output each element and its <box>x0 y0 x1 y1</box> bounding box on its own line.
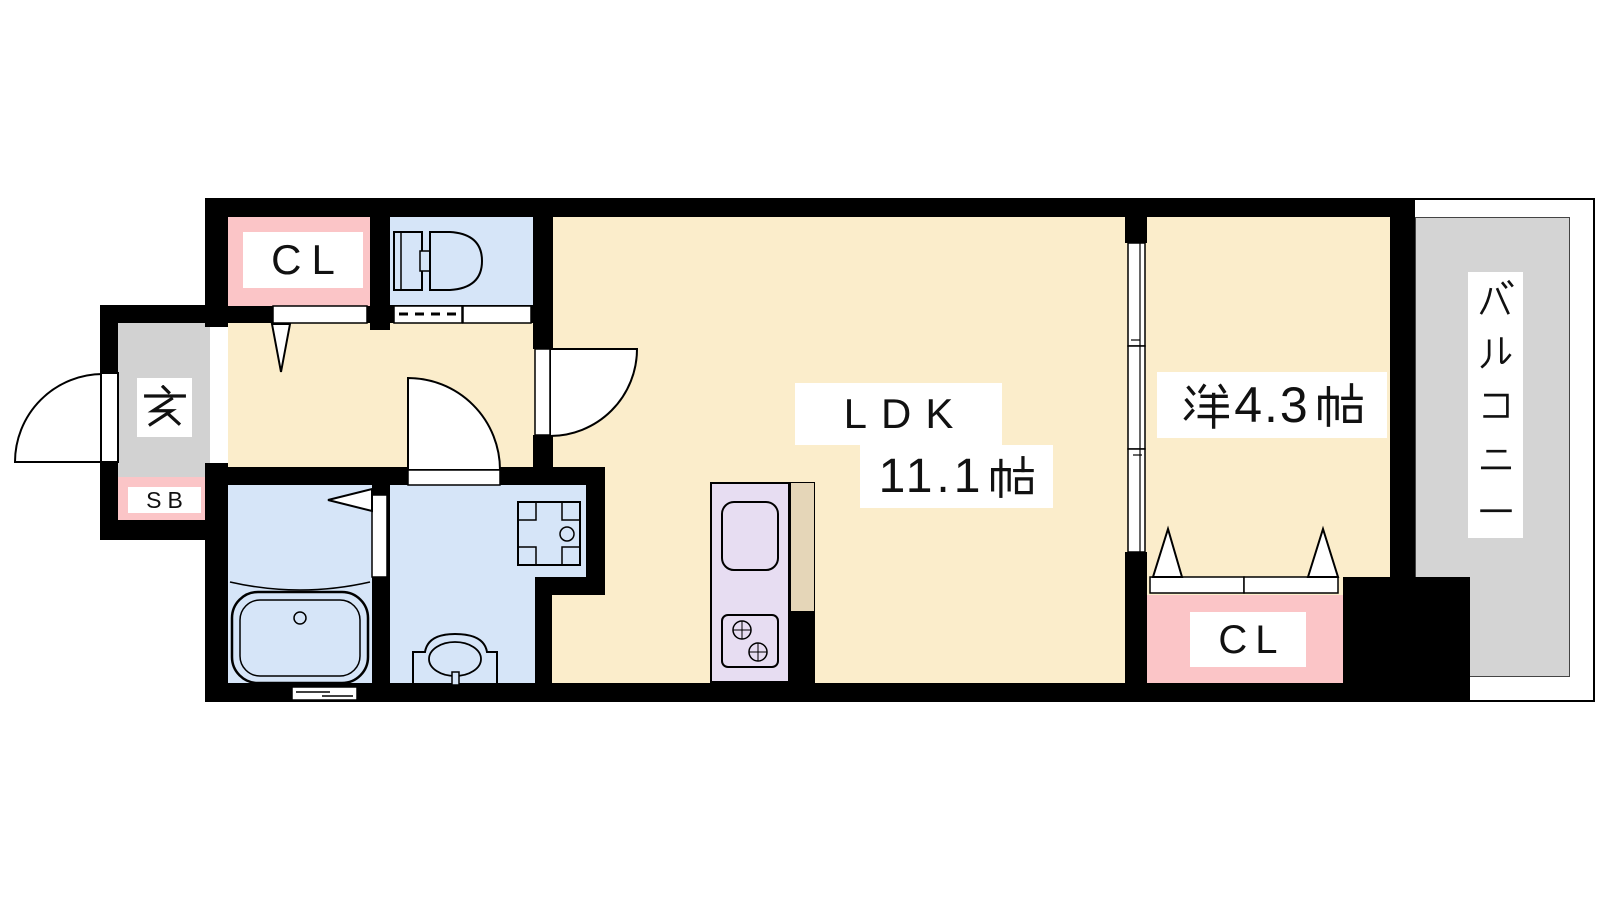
toilet-sliding-door <box>394 306 531 323</box>
kanji-gen-glyph <box>142 385 188 431</box>
washroom-door-swing <box>408 378 500 485</box>
katakana-ba-glyph <box>1477 278 1515 322</box>
bath-window <box>292 687 357 700</box>
ldk-size-value: 11.1 <box>879 453 985 501</box>
washing-machine-pan-icon <box>518 502 580 565</box>
jou-unit-glyph <box>1315 381 1363 429</box>
western-room-size-value: 4.3 <box>1234 380 1310 430</box>
closet-bottom-doors <box>1150 529 1338 593</box>
kanji-you-glyph <box>1181 381 1229 429</box>
floor-plan: CL SB LDK 11.1 4.3 CL <box>0 0 1600 900</box>
closet-top-label: CL <box>243 232 363 288</box>
closet-top-door <box>272 306 367 372</box>
shoe-box-label: SB <box>128 487 201 513</box>
bathtub-icon <box>230 582 370 683</box>
ldk-name-label: LDK <box>795 383 1002 445</box>
katakana-ko-glyph <box>1477 383 1515 427</box>
balcony-label <box>1468 272 1523 538</box>
closet-bottom-label: CL <box>1190 612 1306 667</box>
fixtures-overlay <box>0 0 1600 900</box>
katakana-ni-glyph <box>1477 436 1515 480</box>
western-room-label: 4.3 <box>1157 372 1387 438</box>
kitchen-sink-icon <box>722 502 778 570</box>
ldk-size-label: 11.1 <box>860 445 1053 508</box>
jou-unit-glyph <box>988 454 1034 500</box>
entrance-door-swing <box>15 373 118 462</box>
bathroom-door <box>328 489 387 577</box>
stove-icon <box>722 615 778 667</box>
partition-sliding-doors <box>1128 243 1145 552</box>
entrance-label <box>137 378 192 437</box>
toilet-icon <box>394 232 482 290</box>
katakana-choon-glyph <box>1477 488 1515 532</box>
katakana-ru-glyph <box>1477 331 1515 375</box>
washbasin-icon <box>413 634 497 685</box>
ldk-door-swing <box>535 349 637 436</box>
